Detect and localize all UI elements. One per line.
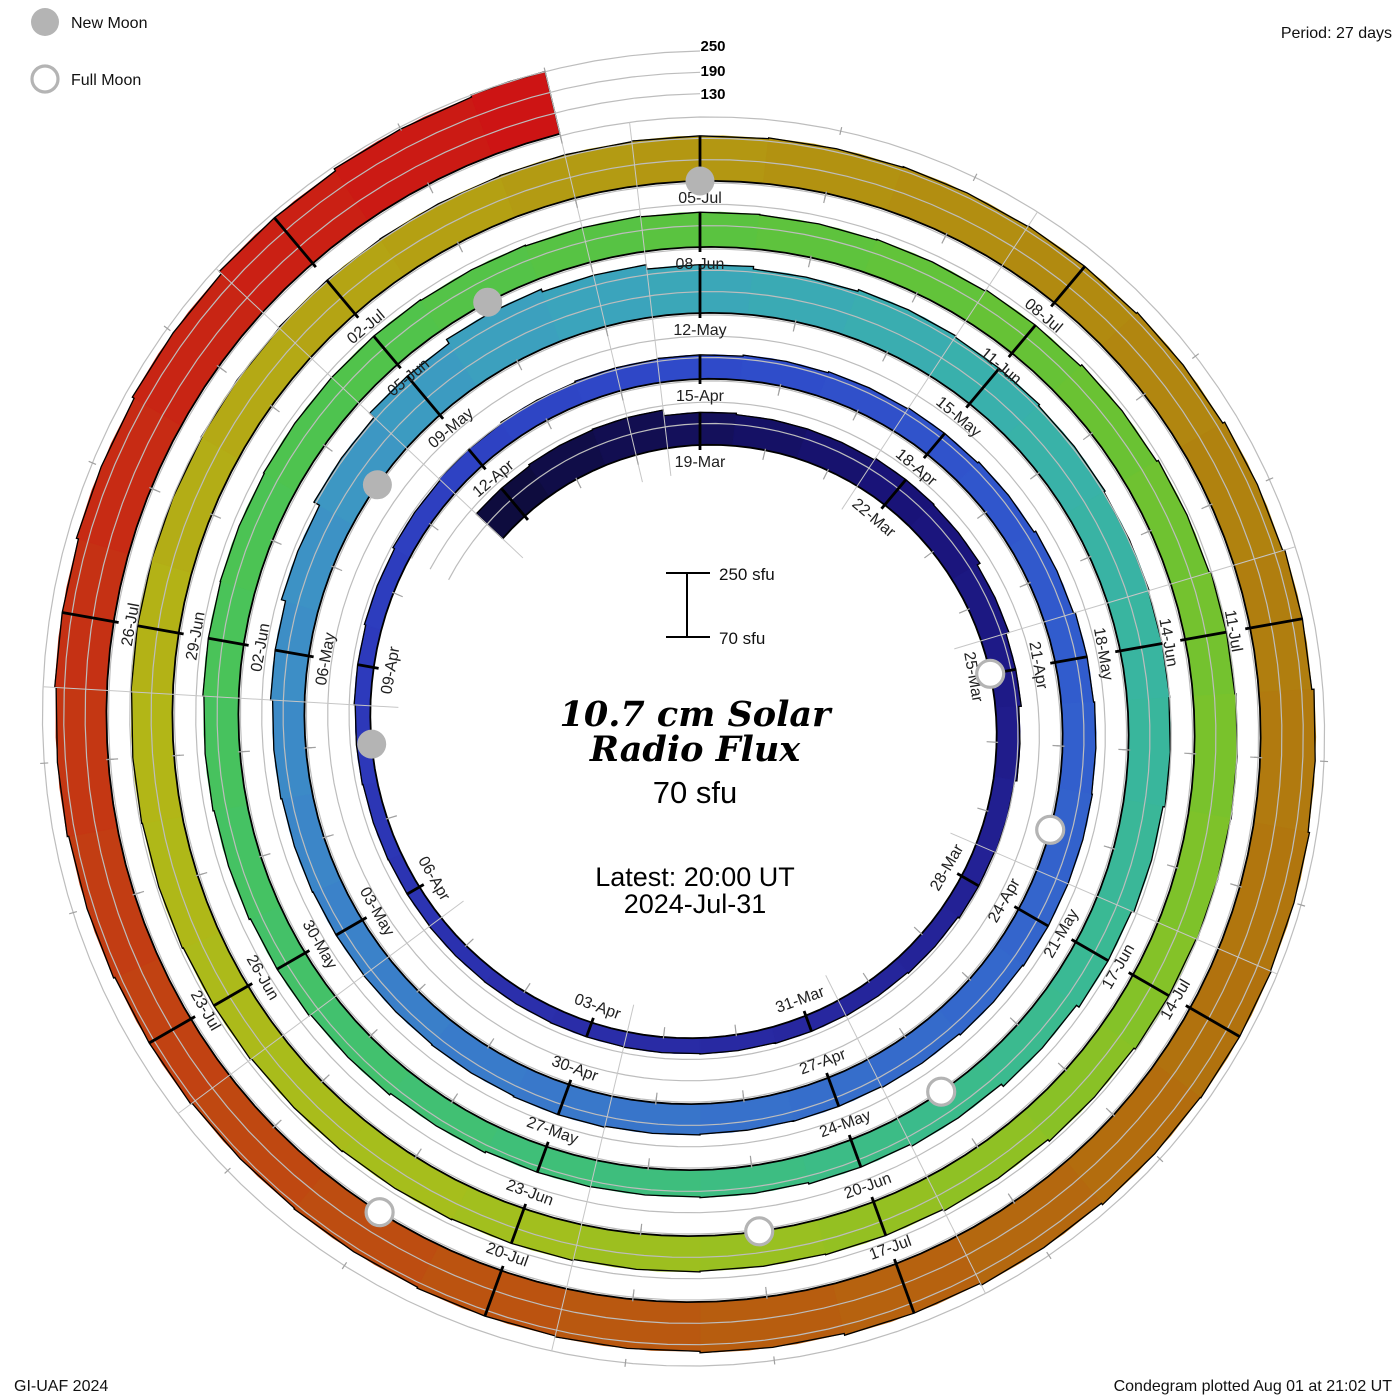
new-moon-label: New Moon (71, 15, 147, 32)
flux-bar (1059, 702, 1096, 794)
day-tick (823, 469, 828, 479)
spiral-date-label: 18-May (1090, 626, 1116, 682)
new-moon-marker (686, 167, 715, 196)
flux-bar (976, 777, 1015, 853)
flux-bar (1189, 694, 1238, 819)
day-tick-outer (1047, 1252, 1051, 1259)
full-moon-marker (928, 1078, 955, 1105)
axis-tick-190: 190 (700, 63, 725, 80)
day-tick (1118, 749, 1129, 750)
full-moon-marker (1037, 816, 1064, 843)
full-moon-label: Full Moon (71, 72, 141, 89)
flux-bar (1158, 811, 1231, 939)
flux-scale-bar (666, 573, 710, 637)
latest-time-label: Latest: 20:00 UT (595, 862, 795, 892)
scale-bottom-label: 70 sfu (719, 629, 765, 648)
flux-bar (624, 1032, 700, 1054)
chart-title-line2: Radio Flux (589, 729, 801, 770)
flux-bar (838, 959, 907, 1016)
day-tick (863, 973, 869, 983)
spiral-date-label: 29-Jun (183, 611, 208, 662)
flux-bar (363, 782, 401, 860)
new-moon-marker (357, 730, 386, 759)
flux-bar (142, 816, 219, 948)
flux-bar (700, 1156, 809, 1198)
period-label: Period: 27 days (1281, 25, 1392, 42)
axis-tick-130: 130 (700, 86, 725, 103)
spiral-date-label: 06-May (313, 631, 339, 687)
spiral-date-label: 19-Mar (675, 454, 726, 471)
day-tick (107, 759, 118, 760)
flux-bar (282, 793, 341, 892)
flux-axis-labels: 250 190 130 (700, 38, 725, 103)
full-moon-icon (32, 66, 58, 92)
day-tick (1184, 753, 1195, 754)
spiral-date-label: 21-Apr (1025, 640, 1050, 691)
flux-bar (429, 918, 494, 982)
plotted-time-label: Condegram plotted Aug 01 at 21:02 UT (1114, 1378, 1393, 1395)
axis-tick-250: 250 (700, 38, 725, 55)
day-tick (576, 478, 581, 488)
new-moon-marker (363, 470, 392, 499)
full-moon-marker (746, 1218, 773, 1245)
day-tick (173, 755, 184, 756)
flux-bar (700, 1027, 775, 1054)
flux-bar (958, 462, 1034, 547)
flux-bar (311, 997, 410, 1095)
day-tick-outer (625, 1359, 626, 1367)
flux-bar (575, 359, 660, 403)
day-tick (987, 742, 998, 743)
flux-bar (364, 957, 452, 1044)
flux-bar (393, 480, 455, 558)
day-tick (1250, 757, 1261, 758)
spiral-date-label: 08-Jun (676, 256, 725, 273)
flux-bar (1124, 698, 1171, 807)
condegram-chart: 19-Mar22-Mar25-Mar28-Mar31-Mar03-Apr06-A… (0, 0, 1400, 1400)
day-tick-outer (342, 1262, 346, 1269)
new-moon-icon (31, 8, 59, 36)
day-tick (524, 983, 530, 993)
flux-bar (500, 142, 637, 218)
spiral-date-label: 02-Jun (248, 622, 273, 673)
latest-flux-value: 70 sfu (653, 775, 737, 810)
flux-bar (391, 1072, 498, 1153)
flux-bar (214, 805, 280, 920)
spiral-date-label: 15-Apr (676, 388, 725, 405)
spiral-date-label: 12-May (673, 322, 726, 339)
flux-bar (364, 549, 410, 630)
flux-bar (69, 828, 159, 978)
day-tick (959, 609, 970, 614)
scale-top-label: 250 sfu (719, 565, 775, 584)
day-tick (560, 132, 563, 143)
flux-bar (939, 946, 1023, 1036)
flux-bar (1254, 689, 1316, 832)
center-text-block: 10.7 cm Solar Radio Flux 70 sfu Latest: … (560, 694, 834, 919)
day-tick (1053, 746, 1064, 747)
day-tick (304, 747, 315, 748)
moon-legend: New Moon Full Moon (31, 8, 147, 92)
day-tick (924, 551, 933, 558)
day-tick (914, 927, 922, 935)
flux-bar (952, 565, 1009, 641)
day-tick-outer (774, 1356, 775, 1364)
day-tick (238, 751, 249, 752)
flux-bar (897, 906, 959, 973)
latest-date-label: 2024-Jul-31 (624, 889, 767, 919)
spiral-date-label: 09-Apr (378, 645, 403, 696)
credit-label: GI-UAF 2024 (14, 1378, 108, 1395)
full-moon-marker (977, 660, 1004, 687)
full-moon-marker (366, 1199, 393, 1226)
new-moon-marker (473, 288, 502, 317)
flux-bar (281, 505, 352, 610)
flux-bar (1009, 531, 1073, 622)
day-tick-outer (164, 326, 170, 331)
day-tick (465, 939, 473, 947)
